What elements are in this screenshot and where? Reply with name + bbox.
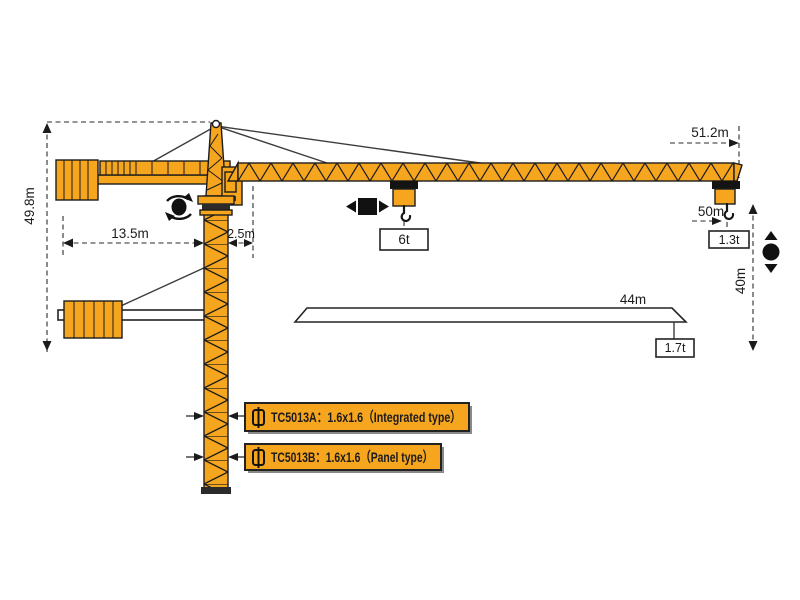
max-load-label: 6t (398, 232, 410, 247)
arrowhead-left (63, 239, 73, 248)
trolley-mid: 6t (380, 181, 428, 250)
crane-diagram-svg: 49.8m 13.5m 2.5m 51.2m 50m 40m (0, 0, 800, 600)
short-jib-outline: 44m 1.7t (295, 292, 694, 357)
tower-mast (201, 196, 231, 494)
apex-pulley (213, 121, 220, 128)
arrowhead-down (43, 341, 52, 351)
arrowhead-down (749, 341, 758, 351)
tip-load-long-jib-label: 1.3t (719, 233, 740, 247)
model-a-label: TC5013A：1.6x1.6（Integrated type） (271, 409, 461, 425)
under-hook-height-label: 40m (733, 268, 748, 294)
jib-tip (734, 163, 742, 181)
arrowhead-up (43, 123, 52, 133)
tip-load-short-jib-label: 1.7t (665, 341, 686, 355)
hoisting-updown-icon (763, 231, 780, 273)
short-jib-length-label: 44m (620, 292, 646, 307)
hoist-block (393, 189, 415, 206)
slewing-unit (198, 196, 234, 215)
jib-tip-radius-label: 51.2m (691, 125, 729, 140)
main-jib (228, 163, 742, 181)
arrowhead-right (194, 239, 204, 248)
total-height-label: 49.8m (22, 187, 37, 225)
trolley-travel-icon (346, 198, 389, 215)
hook-icon (402, 206, 410, 221)
tower-offset-label: 2.5m (227, 227, 255, 241)
pointer-arrow-left (194, 412, 204, 420)
alt-counter-jib (58, 267, 208, 338)
trolley-frame (390, 181, 418, 189)
counter-jib-length-label: 13.5m (111, 226, 149, 241)
arrowhead-up (749, 204, 758, 214)
counter-jib (56, 160, 230, 200)
max-radius-label: 50m (698, 204, 724, 219)
trolley-frame (712, 181, 740, 189)
mast-base-cap (201, 487, 231, 494)
model-b-label: TC5013B：1.6x1.6（Panel type） (271, 449, 433, 465)
hook-icon (725, 204, 733, 219)
slewing-rotation-icon (165, 193, 193, 221)
pointer-arrow-right (228, 453, 238, 461)
short-jib-profile (295, 308, 686, 322)
hoist-block (715, 189, 735, 204)
tie-bars (150, 126, 487, 164)
counterweight-block (56, 160, 98, 200)
dimension-counter-jib: 13.5m (63, 216, 204, 256)
pointer-arrow-left (194, 453, 204, 461)
pointer-arrow-right (228, 412, 238, 420)
model-label-integrated: TC5013A：1.6x1.6（Integrated type） (186, 403, 472, 434)
arrowhead-right (729, 139, 739, 147)
dimension-max-radius: 50m (692, 204, 724, 225)
dimension-under-hook-height: 40m (733, 204, 758, 351)
crane-diagram: 49.8m 13.5m 2.5m 51.2m 50m 40m (0, 0, 800, 600)
